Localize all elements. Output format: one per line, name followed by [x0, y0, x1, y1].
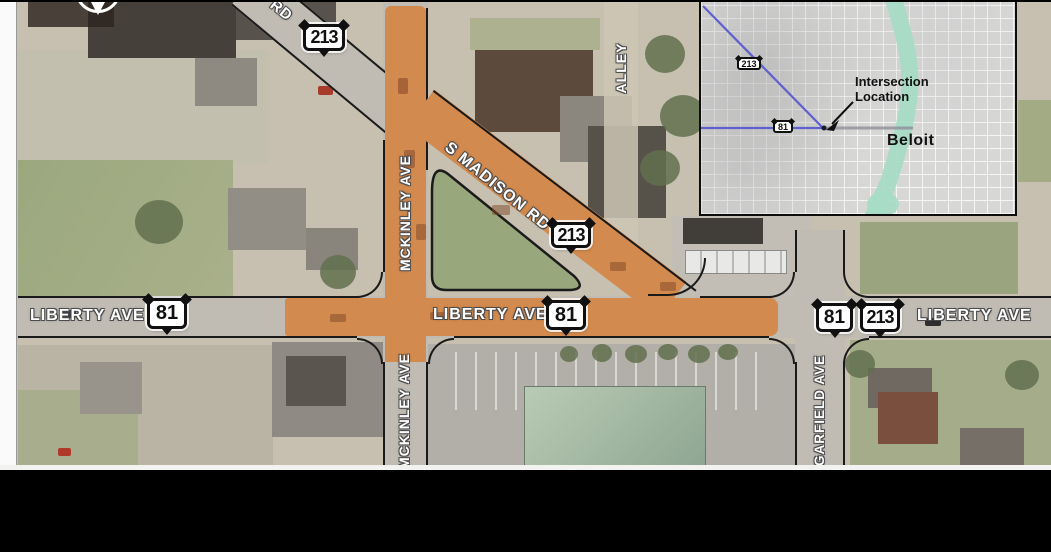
inset-roads	[701, 2, 1015, 214]
street-label-liberty-ave-west: LIBERTY AVE	[30, 307, 145, 325]
street-label-liberty-ave-east: LIBERTY AVE	[917, 307, 1032, 325]
compass-needle	[91, 2, 105, 15]
shield-notch	[561, 330, 571, 336]
page-border-top	[0, 0, 1051, 2]
inset-city-label: Beloit	[887, 132, 934, 150]
page-margin-left	[0, 0, 17, 470]
car	[416, 224, 426, 240]
car	[330, 314, 346, 322]
shield-notch	[162, 329, 172, 335]
route-shield-81-center: 81	[546, 300, 586, 330]
letterbox-bar	[0, 470, 1051, 552]
street-label-mckinley-ave-north: MCKINLEY AVE	[396, 163, 414, 271]
car	[398, 78, 408, 94]
car	[660, 282, 676, 291]
inset-map: Intersection Location Beloit 213 81	[699, 0, 1017, 216]
inset-route-shield-81: 81	[773, 120, 793, 133]
aerial-map: LIBERTY AVE LIBERTY AVE LIBERTY AVE S MA…	[0, 0, 1051, 470]
screenshot-stage: LIBERTY AVE LIBERTY AVE LIBERTY AVE S MA…	[0, 0, 1051, 552]
street-label-mckinley-ave-south: MCKINLEY AVE	[395, 361, 413, 469]
shield-notch	[319, 51, 329, 57]
shield-ear	[771, 118, 778, 125]
route-shield-213-madison: 213	[551, 222, 591, 248]
shield-notch	[830, 332, 840, 338]
inset-callout-label: Intersection Location	[855, 74, 955, 104]
compass-icon	[28, 0, 114, 27]
street-label-liberty-ave-center: LIBERTY AVE	[433, 306, 548, 324]
street-label-alley: ALLEY	[612, 38, 630, 98]
inset-route-shield-213: 213	[737, 57, 761, 70]
route-shield-213-east: 213	[860, 303, 900, 332]
route-shield-213-north: 213	[303, 24, 345, 51]
shield-notch	[875, 332, 885, 338]
route-shield-81-east: 81	[816, 303, 853, 332]
route-shield-81-west: 81	[147, 298, 187, 329]
car	[610, 262, 626, 271]
shield-notch	[566, 248, 576, 254]
street-label-garfield-ave: GARFIELD AVE	[811, 358, 829, 466]
